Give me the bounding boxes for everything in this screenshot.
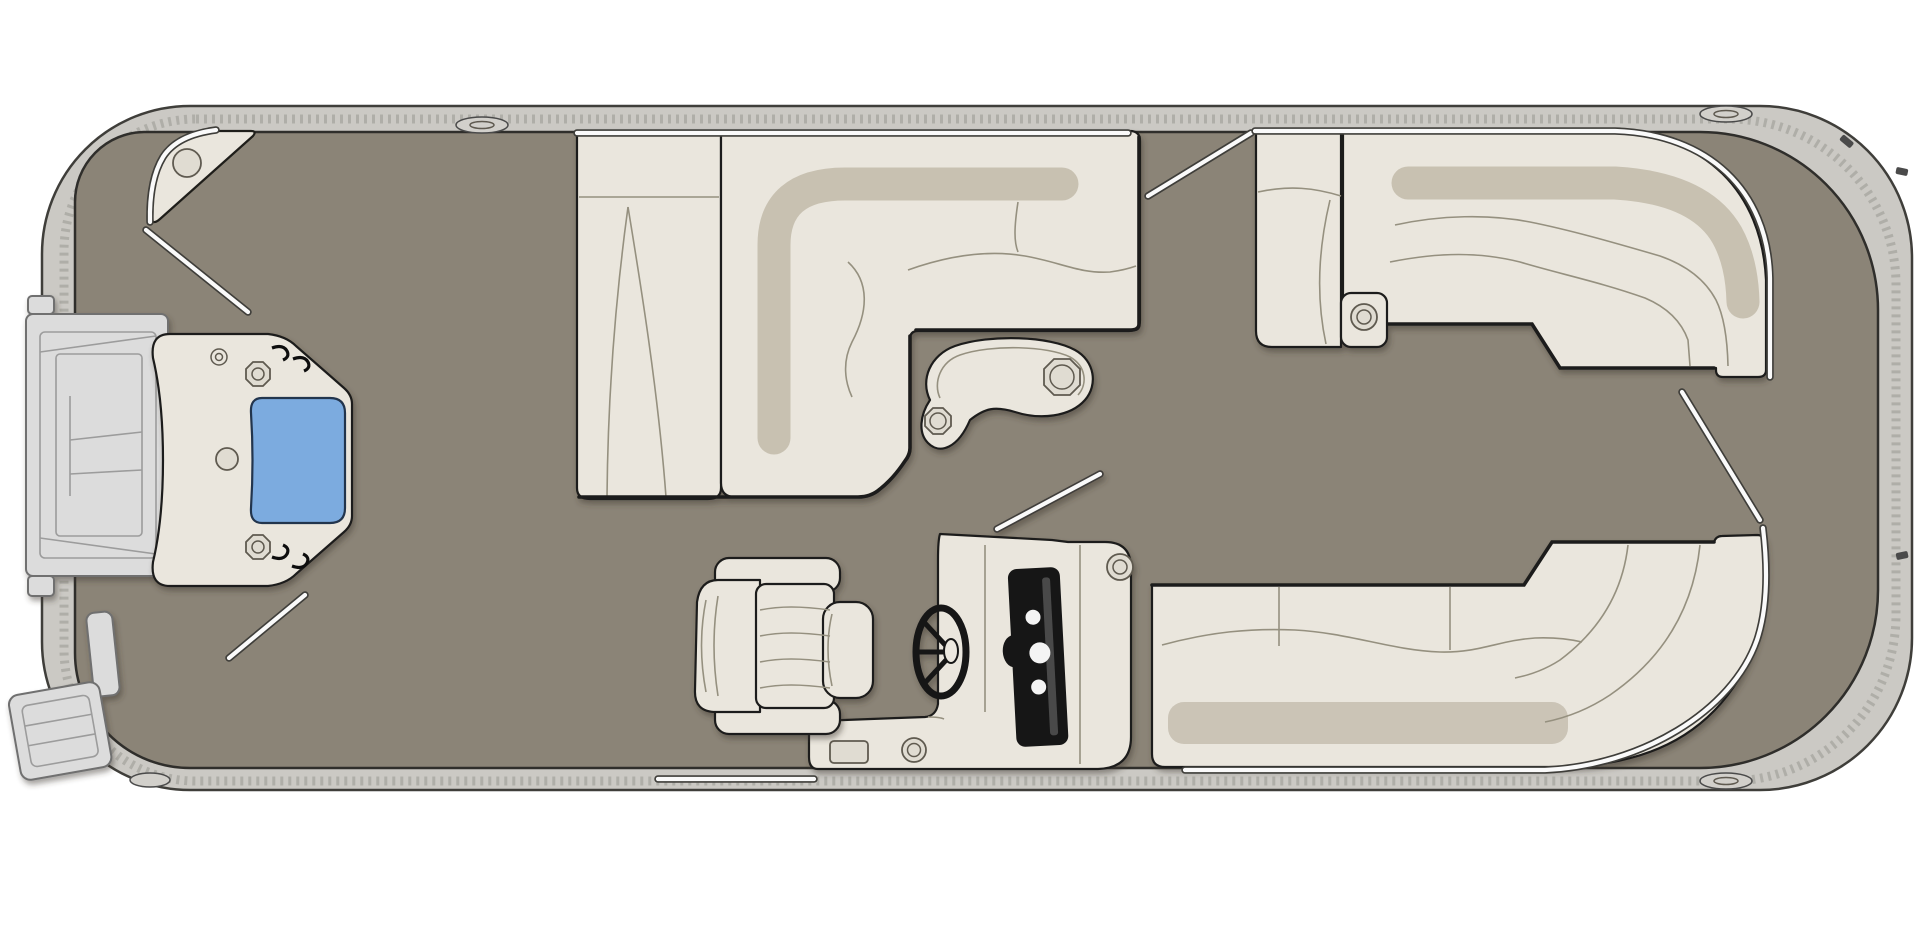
console-cupholder-left <box>902 738 926 762</box>
door-knob-top <box>246 362 270 386</box>
port-chaise-bench <box>577 131 721 499</box>
chair-bolster <box>823 602 873 698</box>
console-step-vent <box>830 741 868 763</box>
stern-bench-base-shadow <box>1168 702 1568 744</box>
door-latch-circle <box>216 448 238 470</box>
bow-gate-door <box>153 334 352 586</box>
table-cupholder-small <box>925 408 951 434</box>
bow-boarding-platform <box>26 296 168 596</box>
bow-step-speaker-circle <box>173 149 201 177</box>
console-cupholder-right <box>1107 554 1133 580</box>
starboard-chaise-seat <box>1256 131 1341 347</box>
door-knob-bottom <box>246 535 270 559</box>
starboard-armrest-cupholder <box>1341 293 1387 347</box>
bow-gate-blue-panel <box>251 398 345 523</box>
pontoon-floor-plan <box>0 0 1920 936</box>
chair-backrest <box>695 580 760 712</box>
pontoon-floor-plan-page <box>0 0 1920 936</box>
